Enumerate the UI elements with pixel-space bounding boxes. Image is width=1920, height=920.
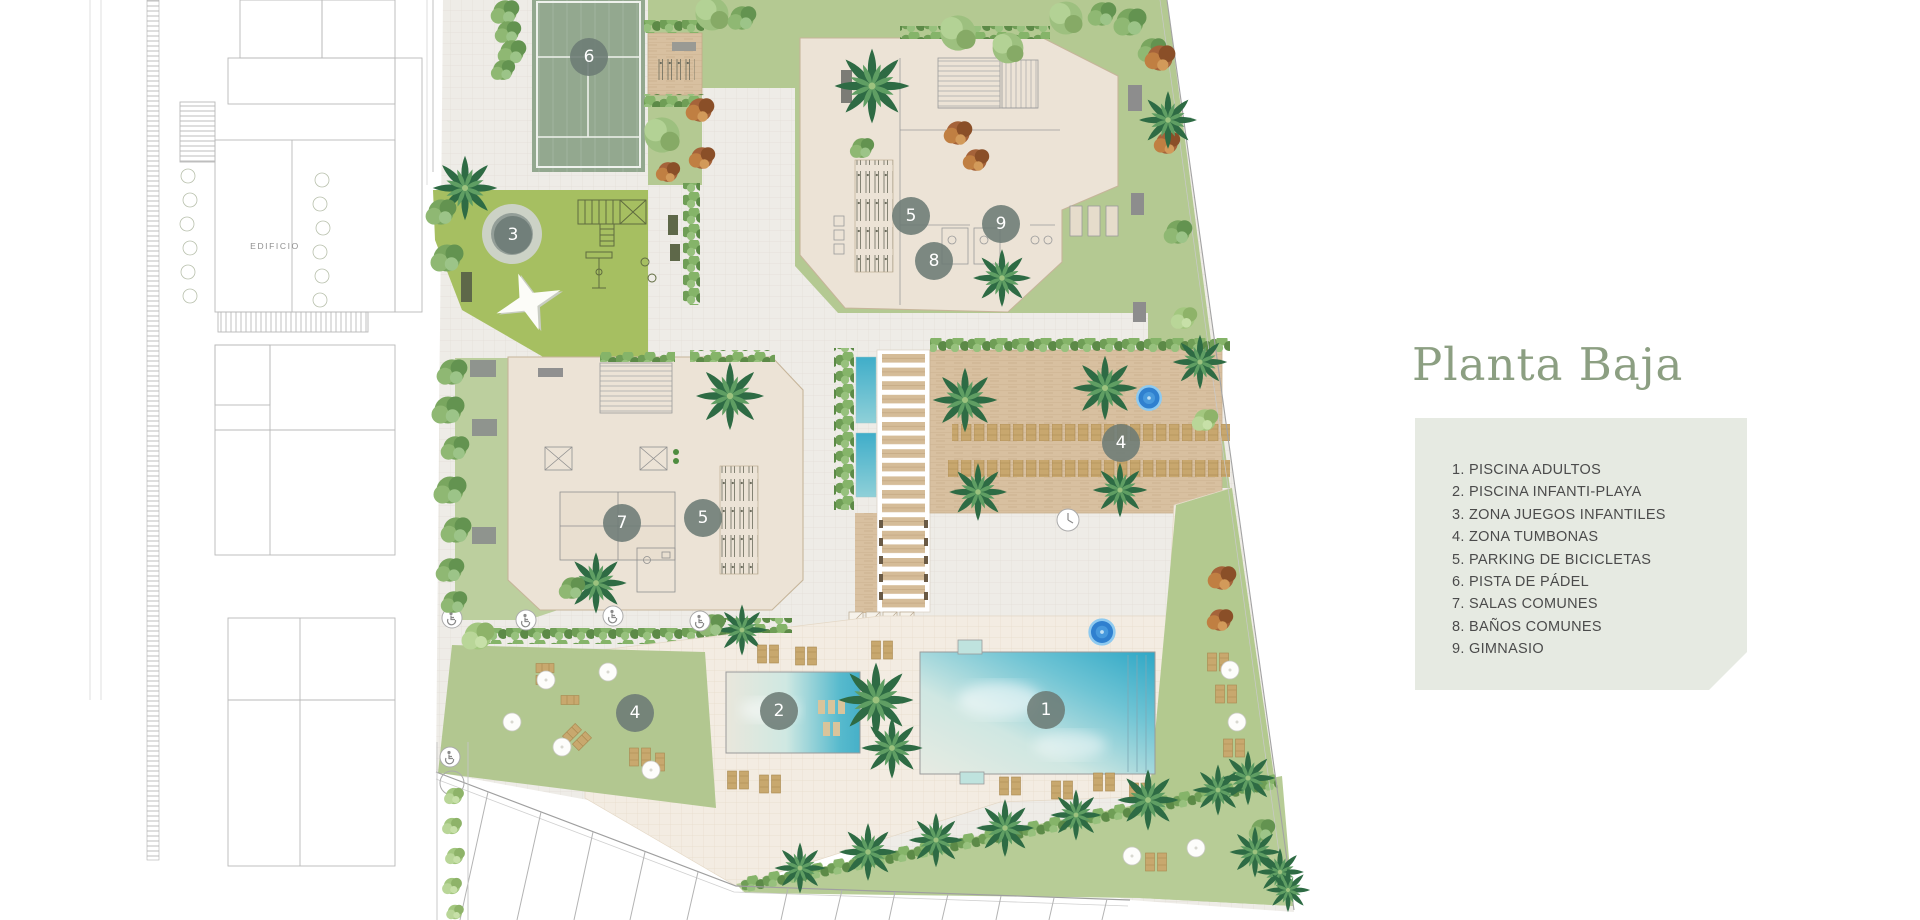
plan-marker-6: 6: [570, 38, 608, 76]
spa-pool: [1136, 385, 1162, 411]
plan-marker-5: 5: [892, 197, 930, 235]
legend-item: 1. PISCINA ADULTOS: [1452, 459, 1747, 481]
legend-item: 7. SALAS COMUNES: [1452, 593, 1747, 615]
page-title: Planta Baja: [1412, 338, 1683, 391]
spa-pool: [1088, 618, 1115, 645]
legend-item: 6. PISTA DE PÁDEL: [1452, 571, 1747, 593]
neighbor-building-label: EDIFICIO: [232, 241, 318, 251]
lap-pool-lower: [856, 433, 876, 497]
neighbor-buildings-cad: [90, 0, 427, 866]
lap-pool-upper: [856, 357, 876, 423]
plan-marker-8: 8: [915, 242, 953, 280]
legend-item: 3. ZONA JUEGOS INFANTILES: [1452, 504, 1747, 526]
plan-marker-9: 9: [982, 205, 1020, 243]
plan-marker-7: 7: [603, 504, 641, 542]
wheelchair-icon: [690, 611, 710, 631]
wheelchair-icon: [603, 606, 623, 626]
plan-marker-3: 3: [494, 216, 532, 254]
legend-item: 9. GIMNASIO: [1452, 638, 1747, 660]
plan-marker-4: 4: [616, 694, 654, 732]
legend-item: 8. BAÑOS COMUNES: [1452, 616, 1747, 638]
wheelchair-icon: [516, 610, 536, 630]
legend-item: 4. ZONA TUMBONAS: [1452, 526, 1747, 548]
plan-marker-4: 4: [1102, 424, 1140, 462]
plan-marker-5: 5: [684, 499, 722, 537]
deck-tumbonas: [930, 338, 1230, 521]
padel-court: [532, 0, 645, 172]
legend-item: 2. PISCINA INFANTI-PLAYA: [1452, 481, 1747, 503]
legend-box: 1. PISCINA ADULTOS2. PISCINA INFANTI-PLA…: [1415, 418, 1747, 690]
plan-marker-2: 2: [760, 692, 798, 730]
legend-list: 1. PISCINA ADULTOS2. PISCINA INFANTI-PLA…: [1415, 418, 1747, 661]
legend-item: 5. PARKING DE BICICLETAS: [1452, 549, 1747, 571]
plan-marker-1: 1: [1027, 691, 1065, 729]
clock-icon: [1057, 509, 1079, 531]
wheelchair-icon: [440, 747, 460, 767]
site-plan-page: EDIFICIO 63598754421 Planta Baja 1. PISC…: [0, 0, 1920, 920]
planter-bikes-north: [644, 20, 704, 107]
